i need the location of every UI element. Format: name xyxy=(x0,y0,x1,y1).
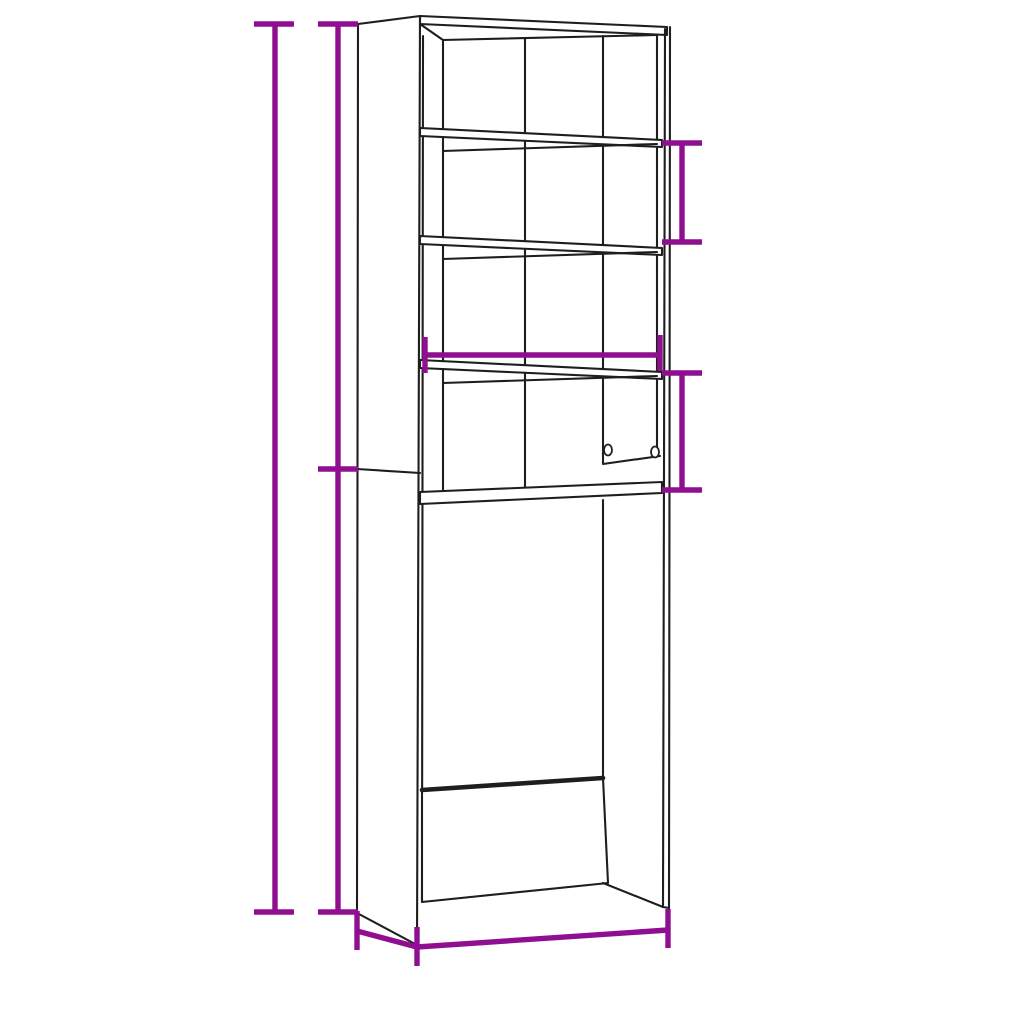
right-panel-inner-bottom-edge xyxy=(603,883,663,907)
back-panel-cutout-edge xyxy=(603,456,660,464)
dimension-depth xyxy=(357,911,417,966)
back-panel xyxy=(422,35,660,901)
dimension-line xyxy=(417,930,668,947)
drill-hole-left xyxy=(604,445,612,456)
dimension-line xyxy=(357,931,417,947)
shelf-2-underside xyxy=(443,252,657,259)
top-panel-front-face xyxy=(420,16,667,35)
dimension-label-top-shelf-gap: 25 cm (9.8”) xyxy=(699,113,751,290)
dimension-middle-shelf-gap xyxy=(662,373,702,490)
split-extension-line xyxy=(357,469,420,473)
shelf-4-countertop xyxy=(420,482,662,504)
dimension-overall-width xyxy=(417,909,668,948)
right-side-panel xyxy=(603,27,670,908)
dimension-label-total-height: 190 cm (74.8”) xyxy=(219,347,271,533)
shelf-1-underside xyxy=(443,144,657,151)
right-panel-inner-edge xyxy=(663,29,665,907)
back-panel-top-edge xyxy=(443,35,657,40)
dimension-diagram-canvas: 190 cm (74.8”) 95 cm (37.4”) 95 cm (37.4… xyxy=(0,0,1024,1024)
lower-back-panel-board xyxy=(422,778,608,902)
left-panel-inner-edge xyxy=(422,36,423,901)
dimension-label-overall-width: 64 cm (25.2”) xyxy=(460,935,661,1007)
dimension-top-shelf-gap xyxy=(662,143,702,242)
cabinet-dimension-diagram: 190 cm (74.8”) 95 cm (37.4”) 95 cm (37.4… xyxy=(0,0,1024,1024)
left-side-panel xyxy=(357,16,420,945)
lower-back-panel xyxy=(422,778,608,902)
left-panel-front-edge xyxy=(417,16,420,945)
shelf-3-underside xyxy=(443,376,657,383)
dimension-section-heights xyxy=(318,24,358,912)
dimension-label-middle-shelf-gap: 25 cm (9.8”) xyxy=(699,347,751,527)
dimension-label-lower-section-height: 95 cm (37.4”) xyxy=(288,597,340,787)
dimension-label-upper-section-height: 95 cm (37.4”) xyxy=(288,130,340,320)
dimension-total-height xyxy=(254,24,294,912)
right-panel-outer-edge xyxy=(669,27,670,908)
left-panel-top-edge xyxy=(358,16,420,24)
drill-hole-right xyxy=(651,447,659,458)
cabinet-drawing xyxy=(357,16,670,945)
shelves xyxy=(420,128,662,504)
